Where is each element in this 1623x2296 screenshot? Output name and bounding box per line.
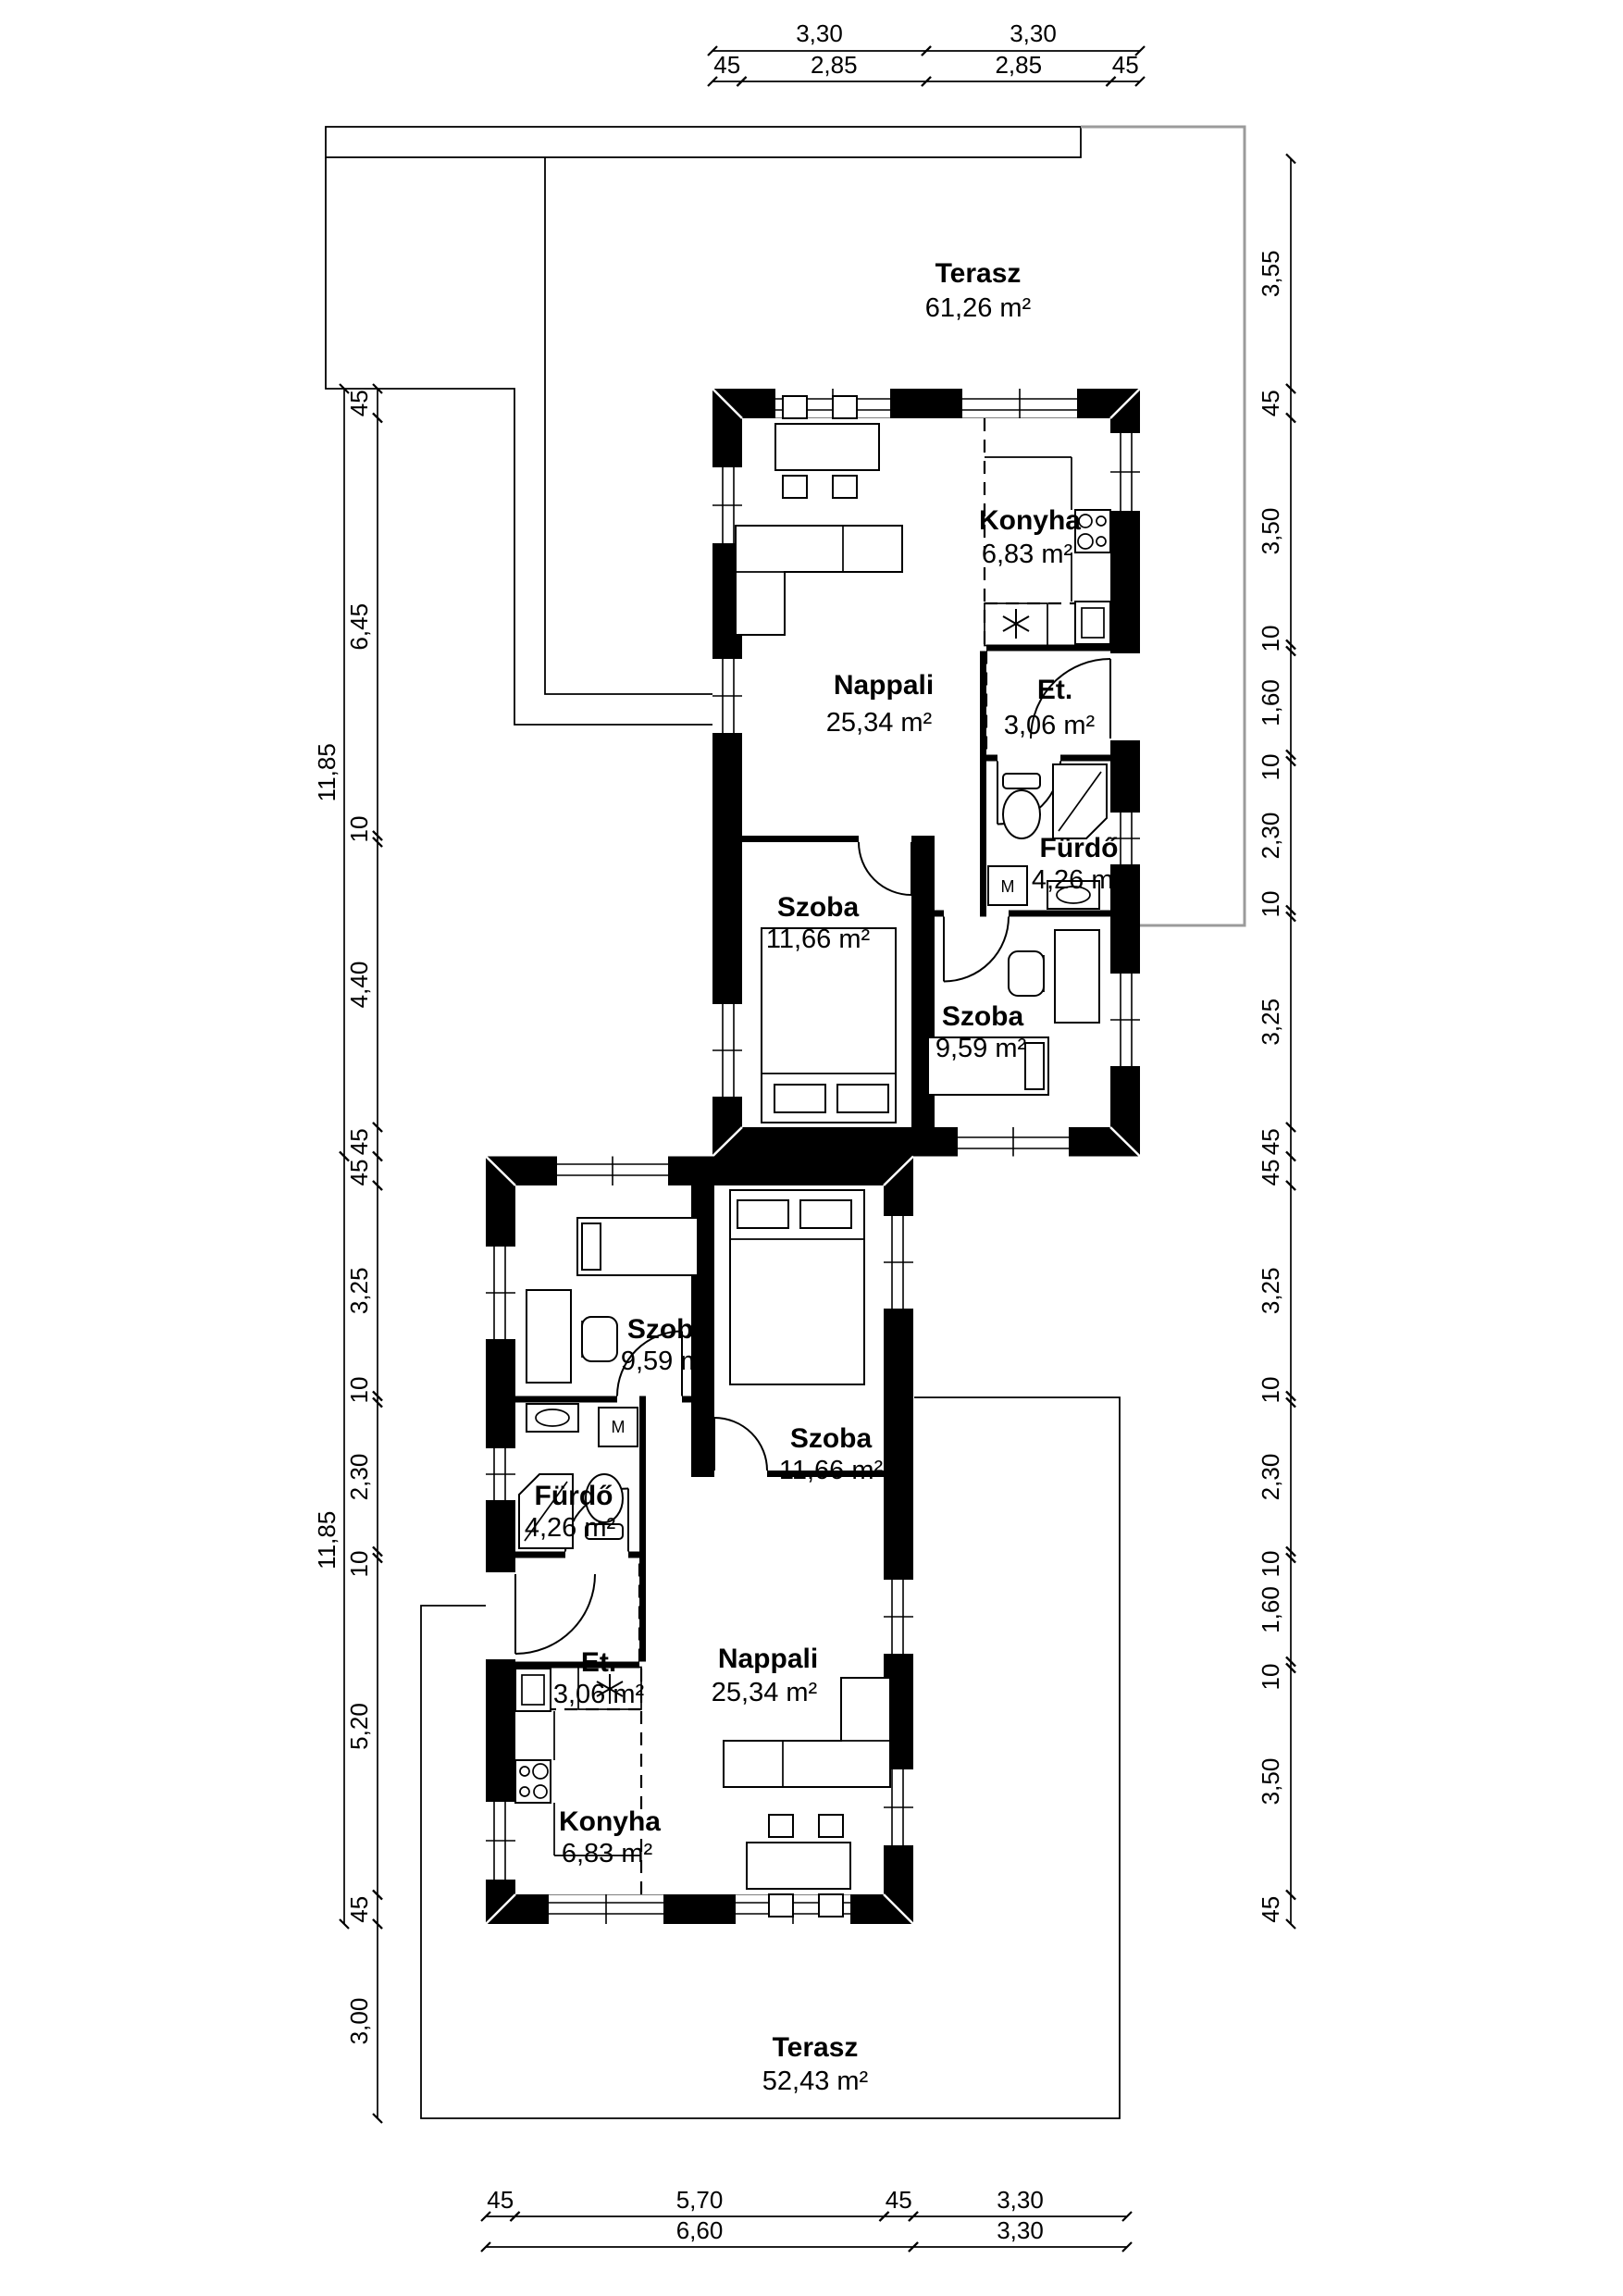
- dim-right: 45: [1257, 390, 1284, 416]
- upper-washing-machine-label: M: [1001, 877, 1015, 896]
- upper-szoba-kis-area: 9,59 m²: [935, 1034, 1027, 1063]
- dim-left: 10: [345, 1377, 373, 1404]
- dim-top: 2,85: [811, 51, 858, 79]
- upper-szoba-kis-name: Szoba: [942, 1001, 1024, 1032]
- dim-right: 10: [1257, 1551, 1284, 1578]
- dim-right: 3,50: [1257, 1758, 1284, 1806]
- dim-bottom: 6,60: [676, 2216, 724, 2244]
- lower-furdo-name: Fürdő: [535, 1481, 613, 1511]
- terasz-bottom-name: Terasz: [773, 2032, 859, 2063]
- dim-left: 4,40: [345, 962, 373, 1009]
- floor-plan-canvas: Terasz 61,26 m² Konyha 6,83 m² Nappali 2…: [0, 0, 1623, 2296]
- upper-nappali-area: 25,34 m²: [826, 708, 933, 738]
- dim-left: 2,30: [345, 1454, 373, 1501]
- terasz-top-area: 61,26 m²: [925, 293, 1032, 323]
- dim-bottom: 45: [487, 2186, 514, 2214]
- dim-right: 2,30: [1257, 813, 1284, 860]
- dim-right: 10: [1257, 1664, 1284, 1691]
- dim-right: 3,25: [1257, 1267, 1284, 1314]
- window-left-3: [712, 1004, 742, 1097]
- window-right-kitchen: [1110, 433, 1140, 511]
- dim-left: 10: [345, 1551, 373, 1578]
- dim-bottom: 3,30: [997, 2216, 1044, 2244]
- dim-right: 10: [1257, 626, 1284, 652]
- dim-right: 45: [1257, 1128, 1284, 1155]
- window-top-right: [962, 389, 1077, 418]
- dim-bottom: 3,30: [997, 2186, 1044, 2214]
- desk: [1055, 930, 1099, 1023]
- lower-konyha-name: Konyha: [559, 1806, 661, 1837]
- dim-right: 2,30: [1257, 1454, 1284, 1501]
- dim-left: 45: [345, 1128, 373, 1155]
- window-left-2: [712, 659, 742, 733]
- dim-left: 45: [345, 1160, 373, 1186]
- dim-left: 10: [345, 816, 373, 843]
- dim-right: 3,50: [1257, 508, 1284, 555]
- upper-furdo-area: 4,26 m²: [1032, 865, 1123, 895]
- lower-szoba-kis-name: Szoba: [627, 1314, 710, 1345]
- upper-szoba-nagy-area: 11,66 m²: [766, 925, 871, 954]
- terasz-top-name: Terasz: [935, 258, 1022, 289]
- dim-left: 3,25: [345, 1267, 373, 1314]
- dim-bottom: 5,70: [676, 2186, 724, 2214]
- lower-nappali-name: Nappali: [718, 1644, 818, 1674]
- lower-furdo-area: 4,26 m²: [525, 1513, 616, 1543]
- dim-bottom: 45: [886, 2186, 912, 2214]
- dim-top: 2,85: [995, 51, 1042, 79]
- dim-right: 1,60: [1257, 1586, 1284, 1633]
- lower-szoba-kis-area: 9,59 m²: [621, 1347, 712, 1376]
- dim-left: 45: [345, 1896, 373, 1923]
- upper-konyha-area: 6,83 m²: [982, 540, 1073, 569]
- lower-szoba-nagy-name: Szoba: [790, 1423, 873, 1454]
- dim-right: 3,25: [1257, 999, 1284, 1046]
- upper-et-area: 3,06 m²: [1004, 711, 1096, 740]
- shower-icon: [1053, 764, 1107, 838]
- dim-left: 45: [345, 390, 373, 416]
- upper-unit-geometry: [712, 389, 1140, 1157]
- dim-left: 6,45: [345, 603, 373, 651]
- toilet-icon: [1003, 774, 1040, 838]
- dim-top: 45: [1112, 51, 1139, 79]
- desk-chair: [1009, 951, 1044, 996]
- upper-szoba-nagy-name: Szoba: [777, 892, 860, 923]
- fridge-icon: [1075, 602, 1110, 644]
- dim-left: 5,20: [345, 1703, 373, 1750]
- dim-top: 3,30: [796, 19, 843, 47]
- lower-szoba-nagy-area: 11,66 m²: [779, 1456, 884, 1485]
- lower-washing-machine-label: M: [612, 1418, 626, 1436]
- dim-left-total: 11,85: [313, 743, 341, 801]
- lower-nappali-area: 25,34 m²: [712, 1678, 818, 1707]
- dim-top: 3,30: [1010, 19, 1057, 47]
- window-right-bedroom: [1110, 974, 1140, 1066]
- dim-left-terrace: 3,00: [345, 1998, 373, 2045]
- dim-right: 45: [1257, 1160, 1284, 1186]
- double-bed: [762, 928, 896, 1123]
- upper-et-name: Et.: [1037, 675, 1072, 705]
- dim-right: 10: [1257, 891, 1284, 918]
- lower-konyha-area: 6,83 m²: [562, 1839, 653, 1868]
- dim-right: 10: [1257, 754, 1284, 781]
- lower-et-name: Et.: [581, 1647, 616, 1678]
- dim-left-total: 11,85: [313, 1511, 341, 1570]
- window-bottom: [958, 1127, 1069, 1157]
- upper-furdo-name: Fürdő: [1040, 833, 1119, 863]
- floor-plan: Terasz 61,26 m² Konyha 6,83 m² Nappali 2…: [0, 0, 1623, 2296]
- dim-right: 45: [1257, 1896, 1284, 1923]
- lower-et-area: 3,06 m²: [553, 1680, 645, 1709]
- dim-right-terrace: 3,55: [1257, 250, 1284, 297]
- dim-right: 1,60: [1257, 679, 1284, 726]
- dim-top: 45: [713, 51, 740, 79]
- upper-nappali-name: Nappali: [834, 670, 934, 701]
- terasz-bottom-area: 52,43 m²: [762, 2066, 869, 2096]
- dim-right: 10: [1257, 1377, 1284, 1404]
- upper-konyha-name: Konyha: [979, 505, 1081, 536]
